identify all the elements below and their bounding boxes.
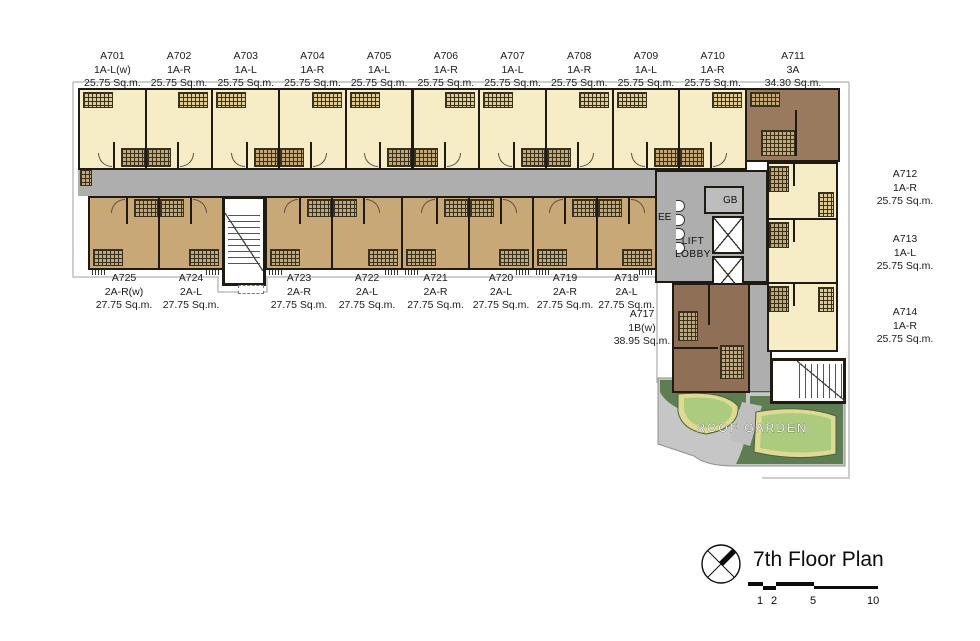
bathroom-tile <box>769 166 789 192</box>
unit-a720[interactable] <box>468 196 534 270</box>
bathroom-tile <box>280 148 304 167</box>
interior-wall <box>379 142 381 168</box>
unit-label-a710: A7101A-R25.75 Sq.m. <box>667 50 759 91</box>
unit-a701[interactable] <box>78 88 147 170</box>
balcony-planter <box>189 249 219 266</box>
balcony-planter <box>622 249 652 266</box>
unit-label-a718-id: A718 <box>581 272 673 286</box>
balcony-planter <box>483 92 513 108</box>
door-swing-icon <box>713 153 727 167</box>
balcony-planter <box>712 92 742 108</box>
bathroom-tile <box>121 148 145 167</box>
bathroom-tile <box>134 199 158 217</box>
bathroom-tile <box>521 148 545 167</box>
balcony-planter <box>350 92 380 108</box>
garbage-room-label: GB <box>723 195 737 206</box>
interior-wall <box>577 142 579 168</box>
unit-a723[interactable] <box>265 196 333 270</box>
balcony-planter <box>617 92 647 108</box>
unit-label-a724-id: A724 <box>145 272 237 286</box>
unit-a721[interactable] <box>401 196 470 270</box>
unit-label-a724-type: 2A-L <box>145 286 237 300</box>
bathroom-tile <box>414 148 438 167</box>
balcony-planter <box>499 249 529 266</box>
bathroom-tile <box>572 199 596 217</box>
unit-label-a724: A7242A-L27.75 Sq.m. <box>145 272 237 313</box>
bathroom-tile <box>254 148 278 167</box>
scale-tick: 5 <box>810 595 816 607</box>
balcony-planter <box>270 249 300 266</box>
balcony-planter <box>445 92 475 108</box>
lift-lobby-label: LIFT LOBBY <box>668 236 718 261</box>
interior-wall <box>126 198 128 224</box>
bathroom-tile <box>680 148 704 167</box>
interior-wall <box>190 198 192 224</box>
unit-a709[interactable] <box>612 88 681 170</box>
unit-label-a713-id: A713 <box>859 233 951 247</box>
interior-wall <box>793 164 795 186</box>
interior-wall <box>113 142 115 168</box>
interior-wall <box>363 198 365 224</box>
unit-a725[interactable] <box>88 196 160 270</box>
unit-label-a717-id: A717 <box>596 308 688 322</box>
unit-label-a710-type: 1A-R <box>667 64 759 78</box>
scale-tick: 2 <box>771 595 777 607</box>
bathroom-tile <box>598 199 622 217</box>
roof-garden-label: ROOF GARDEN <box>696 421 807 435</box>
bathroom-tile <box>720 345 744 379</box>
door-swing-icon <box>193 199 207 213</box>
door-swing-icon <box>631 153 645 167</box>
page-title: 7th Floor Plan <box>753 548 884 572</box>
corridor-end-closet <box>80 169 92 186</box>
balcony-planter <box>83 92 113 108</box>
door-swing-icon <box>284 199 298 213</box>
bathroom-tile <box>147 148 171 167</box>
unit-label-a713-type: 1A-L <box>859 247 951 261</box>
unit-label-a718: A7182A-L27.75 Sq.m. <box>581 272 673 313</box>
balcony-planter <box>750 92 780 107</box>
unit-a705[interactable] <box>345 88 414 170</box>
door-swing-icon <box>421 199 435 213</box>
interior-wall <box>310 142 312 168</box>
bathroom-tile <box>769 286 789 312</box>
door-swing-icon <box>98 153 112 167</box>
unit-label-a717-area: 38.95 Sq.m. <box>596 335 688 349</box>
unit-a704[interactable] <box>278 88 347 170</box>
door-swing-icon <box>366 199 380 213</box>
door-swing-icon <box>631 199 645 213</box>
unit-a718[interactable] <box>596 196 657 270</box>
unit-a707[interactable] <box>478 88 547 170</box>
ee-shaft-label: EE <box>658 212 671 223</box>
interior-wall <box>710 142 712 168</box>
interior-wall <box>793 220 795 242</box>
scale-tick: 1 <box>757 595 763 607</box>
unit-label-a712-area: 25.75 Sq.m. <box>859 195 951 209</box>
bathroom-tile <box>444 199 468 217</box>
bathroom-tile <box>547 148 571 167</box>
interior-wall <box>793 284 795 306</box>
bathroom-tile <box>333 199 357 217</box>
bathroom-tile <box>761 130 795 156</box>
unit-label-a717-type: 1B(w) <box>596 322 688 336</box>
interior-wall <box>500 198 502 224</box>
door-swing-icon <box>503 199 517 213</box>
unit-label-a714-area: 25.75 Sq.m. <box>859 333 951 347</box>
scale-tick: 10 <box>867 595 879 607</box>
scale-bar <box>748 582 763 586</box>
unit-label-a712-id: A712 <box>859 168 951 182</box>
unit-label-a711-area: 34.30 Sq.m. <box>747 77 839 91</box>
unit-label-a714-type: 1A-R <box>859 320 951 334</box>
stairwell-bottom <box>770 358 846 404</box>
bathroom-tile <box>470 199 494 217</box>
unit-label-a711: A7113A34.30 Sq.m. <box>747 50 839 91</box>
interior-wall <box>628 198 630 224</box>
corridor <box>78 170 680 196</box>
interior-wall <box>444 142 446 168</box>
balcony-planter <box>579 92 609 108</box>
balcony-planter <box>406 249 436 266</box>
interior-wall <box>795 110 797 156</box>
door-swing-icon <box>447 153 461 167</box>
unit-label-a711-id: A711 <box>747 50 839 64</box>
door-swing-icon <box>313 153 327 167</box>
unit-label-a724-area: 27.75 Sq.m. <box>145 299 237 313</box>
unit-a713[interactable] <box>767 218 838 286</box>
door-swing-icon <box>231 153 245 167</box>
balcony-planter <box>178 92 208 108</box>
balcony-planter <box>537 249 567 266</box>
unit-label-a717: A7171B(w)38.95 Sq.m. <box>596 308 688 349</box>
door-swing-icon <box>364 153 378 167</box>
unit-a706[interactable] <box>412 88 481 170</box>
balcony-planter <box>818 192 834 217</box>
door-swing-icon <box>549 199 563 213</box>
unit-label-a714: A7141A-R25.75 Sq.m. <box>859 306 951 347</box>
balcony-planter <box>312 92 342 108</box>
unit-label-a712-type: 1A-R <box>859 182 951 196</box>
unit-label-a712: A7121A-R25.75 Sq.m. <box>859 168 951 209</box>
unit-label-a711-type: 3A <box>747 64 839 78</box>
unit-label-a718-type: 2A-L <box>581 286 673 300</box>
balcony-planter <box>368 249 398 266</box>
unit-a724[interactable] <box>158 196 224 270</box>
interior-wall <box>513 142 515 168</box>
unit-a702[interactable] <box>145 88 214 170</box>
balcony-planter <box>93 249 123 266</box>
unit-label-a713-area: 25.75 Sq.m. <box>859 260 951 274</box>
floor-plan-canvas: ROOF GARDEN GB EE LIFT LOBBY 7th Floor P… <box>0 0 980 641</box>
bathroom-tile <box>387 148 411 167</box>
unit-label-a713: A7131A-L25.75 Sq.m. <box>859 233 951 274</box>
unit-a710[interactable] <box>678 88 747 170</box>
interior-wall <box>299 198 301 224</box>
bathroom-tile <box>654 148 678 167</box>
door-swing-icon <box>111 199 125 213</box>
interior-wall <box>246 142 248 168</box>
bathroom-tile <box>307 199 331 217</box>
balcony-planter <box>818 287 834 312</box>
balcony-planter <box>216 92 246 108</box>
interior-wall <box>708 285 710 325</box>
bathroom-tile <box>769 222 789 248</box>
interior-wall <box>436 198 438 224</box>
unit-label-a714-id: A714 <box>859 306 951 320</box>
door-swing-icon <box>180 153 194 167</box>
door-swing-icon <box>580 153 594 167</box>
unit-a719[interactable] <box>532 196 598 270</box>
door-swing-icon <box>498 153 512 167</box>
compass-icon <box>699 542 745 588</box>
interior-wall <box>564 198 566 224</box>
unit-a708[interactable] <box>545 88 614 170</box>
interior-wall <box>646 142 648 168</box>
bathroom-tile <box>160 199 184 217</box>
unit-a712[interactable] <box>767 162 838 222</box>
unit-label-a710-id: A710 <box>667 50 759 64</box>
unit-a711[interactable] <box>745 88 840 162</box>
unit-a722[interactable] <box>331 196 403 270</box>
unit-a703[interactable] <box>211 88 280 170</box>
unit-a714[interactable] <box>767 282 838 352</box>
interior-wall <box>177 142 179 168</box>
